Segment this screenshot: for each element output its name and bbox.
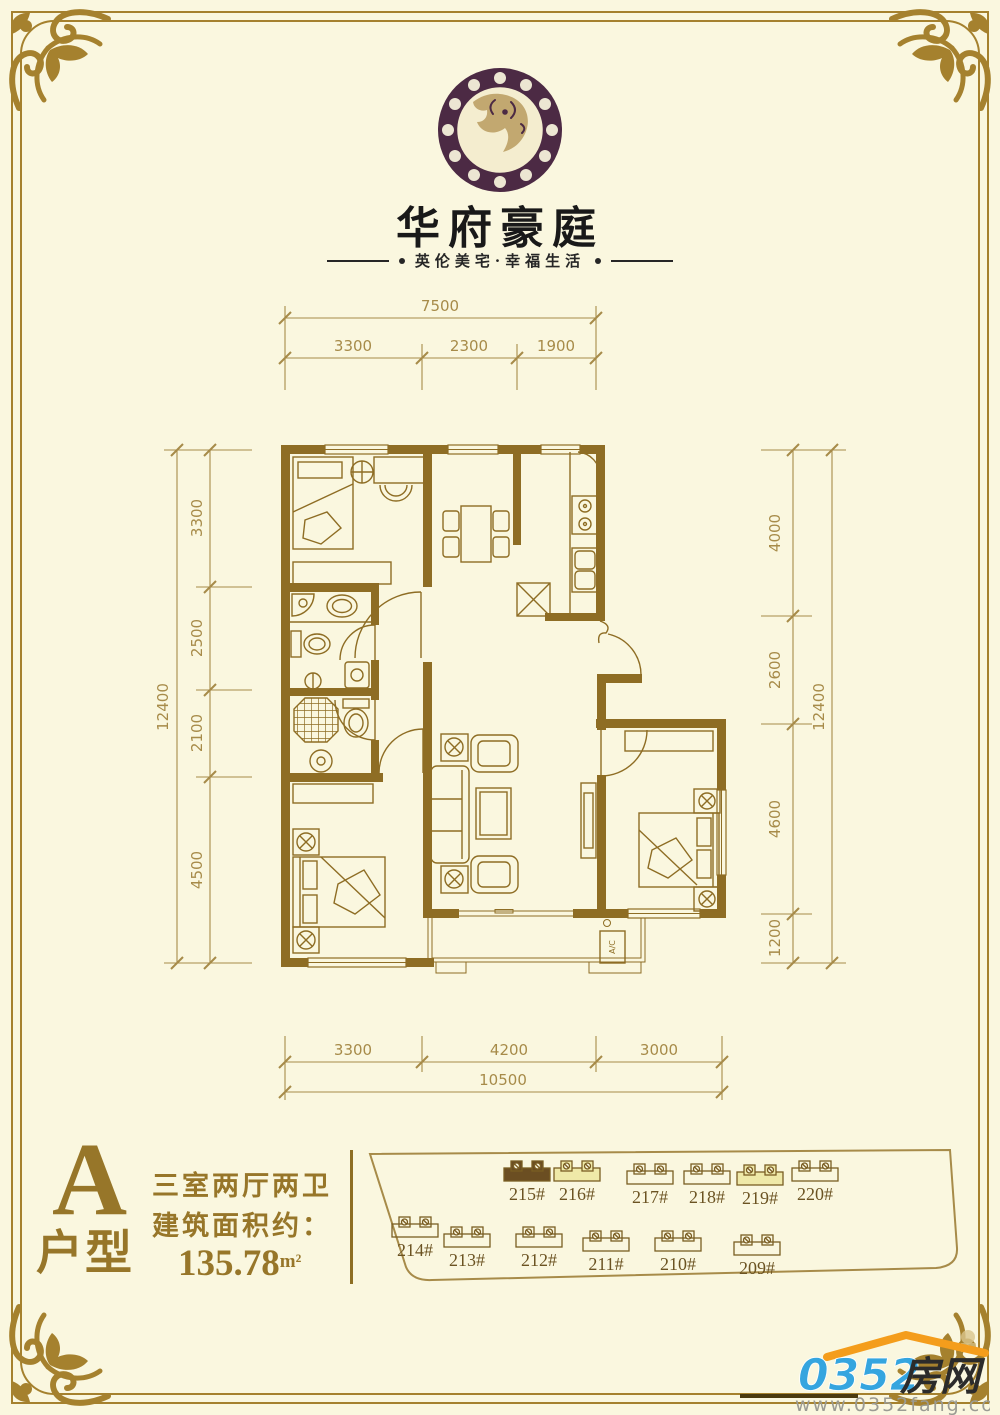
dim-label: 2500 [188,619,206,657]
building-label: 214# [397,1240,433,1260]
building-icon-217 [627,1164,673,1184]
siteplan-buildings [392,1161,838,1255]
building-label: 220# [797,1184,833,1204]
watermark: 0352 房网 www.0352fang.com [735,1318,990,1415]
building-icon-214 [392,1217,438,1237]
dim-top: 7500 3300 2300 1900 [279,297,602,390]
bathroom1-fixtures [290,594,371,689]
building-icon-219 [737,1165,783,1185]
brand-tagline: 英伦美宅·幸福生活 [415,250,585,271]
section-divider [350,1150,353,1284]
bedroom2-furniture [639,789,720,911]
building-icon-215 [504,1161,550,1181]
tagline-dot-right [595,258,601,264]
dim-label: 1200 [766,919,784,957]
building-label: 209# [739,1258,775,1278]
building-icon-218 [684,1164,730,1184]
building-label: 217# [632,1187,668,1207]
ac-unit-label: A/C [608,940,617,954]
dim-label: 3300 [334,1041,372,1059]
building-label: 210# [660,1254,696,1274]
dim-label: 4000 [766,514,784,552]
dim-right: 4000 2600 4600 1200 12400 [761,444,846,969]
brand-name: 华府豪庭 [0,192,1000,256]
corner-ornament-bottom-left [4,1281,134,1411]
dim-label: 1900 [537,337,575,355]
floorplan-walls [281,445,726,967]
tagline-rule-right [611,260,673,262]
kitchen-fixtures [517,452,600,616]
building-icon-220 [792,1161,838,1181]
dim-label: 3300 [334,337,372,355]
dim-bottom: 3300 4200 3000 10500 [279,1036,728,1100]
floorplan-doors [335,592,647,776]
dim-label: 10500 [479,1071,527,1089]
siteplan: 215# 216# 217# 218# 219# 220# 214# 213# … [355,1135,970,1305]
building-icon-211 [583,1231,629,1251]
closets [293,562,713,803]
building-label: 212# [521,1250,557,1270]
unit-type-word: 户型 [36,1230,134,1277]
dim-label: 2600 [766,651,784,689]
corner-ornament-top-left [4,4,134,134]
dim-label: 2300 [450,337,488,355]
tagline-dot-left [399,258,405,264]
dim-label: 4200 [490,1041,528,1059]
unit-rooms-text: 三室两厅两卫 [152,1164,332,1203]
dim-label: 2100 [188,714,206,752]
dim-label: 4600 [766,800,784,838]
watermark-url: www.0352fang.com [795,1394,990,1415]
building-label: 218# [689,1187,725,1207]
tagline-rule-left [327,260,389,262]
watermark-ornament [961,1330,975,1344]
building-label: 215# [509,1184,545,1204]
area-number: 135.78 [178,1243,280,1284]
building-label: 213# [449,1250,485,1270]
dim-label: 7500 [421,297,459,315]
unit-area-value: 135.78m² [178,1242,301,1285]
bathroom2-fixtures [294,698,369,772]
building-icon-212 [516,1227,562,1247]
building-icon-213 [444,1227,490,1247]
bedroom1-furniture [293,457,424,549]
floorplan-windows [308,445,726,967]
living-room-furniture [431,734,596,893]
balcony [428,918,645,973]
corner-ornament-top-right [866,4,996,134]
dim-label: 3000 [640,1041,678,1059]
poster-page: 华府豪庭 英伦美宅·幸福生活 7500 3300 2300 1900 [0,0,1000,1415]
unit-type-letter: A [52,1128,127,1232]
building-label: 216# [559,1184,595,1204]
building-icon-216 [554,1161,600,1181]
area-unit: m² [280,1251,302,1272]
unit-area-label: 建筑面积约： [152,1204,332,1243]
building-icon-210 [655,1231,701,1251]
building-icon-209 [734,1235,780,1255]
watermark-word: 房网 [899,1353,986,1400]
dim-label: 4500 [188,851,206,889]
dim-label: 12400 [810,683,828,731]
dim-label: 3300 [188,499,206,537]
building-label: 211# [588,1254,623,1274]
tagline-row: 英伦美宅·幸福生活 [0,250,1000,271]
brand-emblem-icon [425,60,575,210]
dim-left: 12400 3300 2500 2100 4500 [154,444,252,969]
building-label: 219# [742,1188,778,1208]
master-bedroom-furniture [293,829,385,953]
dim-label: 12400 [154,683,172,731]
dining-furniture [443,506,509,562]
